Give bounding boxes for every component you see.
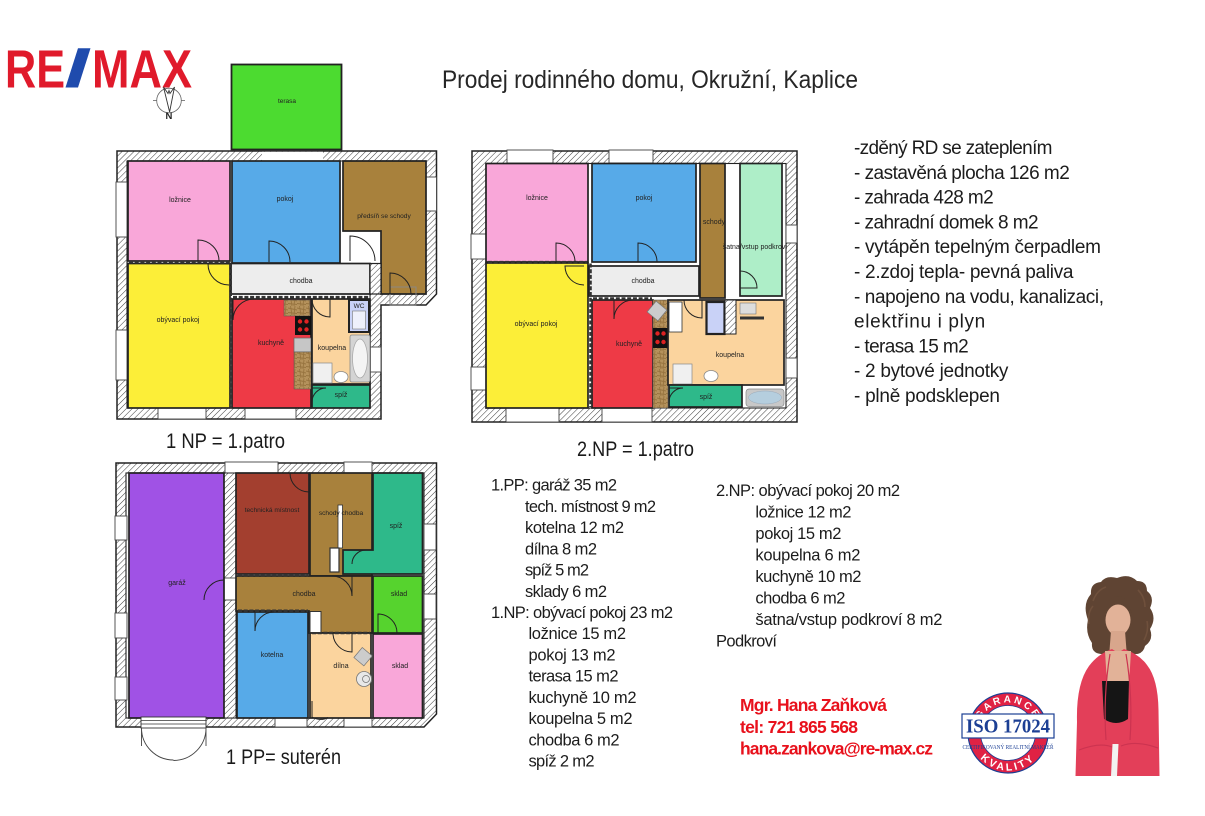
svg-text:sklad: sklad (392, 663, 408, 670)
svg-text:spíž: spíž (390, 523, 403, 530)
svg-text:RE: RE (5, 40, 65, 100)
svg-text:dílna: dílna (333, 663, 348, 670)
svg-text:ložnice: ložnice (526, 195, 548, 202)
svg-text:N: N (166, 111, 173, 122)
svg-text:Podkroví: Podkroví (716, 632, 777, 650)
svg-text:spíž 5 m2: spíž 5 m2 (525, 562, 589, 580)
svg-text:WC: WC (354, 303, 365, 310)
svg-text:technická místnost: technická místnost (245, 507, 300, 514)
svg-text:dílna 8 m2: dílna 8 m2 (525, 540, 597, 558)
svg-text:terasa: terasa (278, 98, 296, 105)
svg-text:kotelna: kotelna (261, 652, 284, 659)
svg-text:kuchyně 10 m2: kuchyně 10 m2 (755, 568, 861, 586)
svg-text:chodba: chodba (290, 278, 313, 285)
svg-text:předsíň se schody: předsíň se schody (357, 213, 411, 220)
svg-text:ISO 17024: ISO 17024 (966, 716, 1050, 738)
svg-text:2.NP = 1.patro: 2.NP = 1.patro (577, 438, 694, 461)
svg-text:obývací pokoj: obývací pokoj (515, 321, 558, 328)
svg-text:pokoj: pokoj (636, 195, 653, 202)
svg-text:koupelna 5 m2: koupelna 5 m2 (529, 710, 633, 728)
svg-text:spíž 2 m2: spíž 2 m2 (529, 753, 595, 771)
svg-text:tech. místnost 9 m2: tech. místnost 9 m2 (525, 498, 656, 516)
svg-text:koupelna: koupelna (318, 345, 347, 352)
svg-text:MAX: MAX (92, 40, 192, 100)
svg-text:1 NP = 1.patro: 1 NP = 1.patro (166, 430, 285, 453)
svg-text:kotelna 12 m2: kotelna 12 m2 (525, 519, 624, 537)
svg-text:1.NP: obývací pokoj 23 m2: 1.NP: obývací pokoj 23 m2 (491, 604, 673, 622)
svg-text:chodba: chodba (293, 591, 316, 598)
svg-text:- terasa 15 m2: - terasa 15 m2 (854, 336, 969, 357)
svg-text:Mgr. Hana Zaňková: Mgr. Hana Zaňková (740, 695, 887, 715)
svg-text:- 2 bytové jednotky: - 2 bytové jednotky (854, 361, 1009, 382)
svg-text:tel: 721 865 568: tel: 721 865 568 (740, 717, 858, 737)
svg-text:koupelna 6 m2: koupelna 6 m2 (755, 546, 860, 564)
svg-text:koupelna: koupelna (716, 352, 745, 359)
svg-text:2.NP: obývací pokoj 20 m2: 2.NP: obývací pokoj 20 m2 (716, 482, 900, 500)
svg-text:- zahrada 428 m2: - zahrada 428 m2 (854, 188, 994, 209)
svg-text:sklady 6 m2: sklady 6 m2 (525, 583, 607, 601)
svg-text:ložnice 12 m2: ložnice 12 m2 (755, 503, 851, 521)
svg-text:kuchyně: kuchyně (258, 340, 284, 347)
svg-text:1 PP= suterén: 1 PP= suterén (226, 746, 341, 769)
svg-text:pokoj 15 m2: pokoj 15 m2 (755, 525, 841, 543)
svg-text:hana.zankova@re-max.cz: hana.zankova@re-max.cz (740, 738, 933, 758)
svg-text:chodba: chodba (632, 278, 655, 285)
svg-text:garáž: garáž (168, 580, 186, 587)
svg-text:- zastavěná plocha 126 m2: - zastavěná plocha 126 m2 (854, 163, 1070, 184)
svg-text:obývací pokoj: obývací pokoj (157, 317, 200, 324)
svg-text:chodba 6 m2: chodba 6 m2 (755, 589, 845, 607)
svg-text:elektřinu i plyn: elektřinu i plyn (854, 312, 985, 333)
svg-text:kuchyně: kuchyně (616, 341, 642, 348)
svg-text:CERTIFIKOVANÝ REALITNÍ MAKLÉŘ: CERTIFIKOVANÝ REALITNÍ MAKLÉŘ (963, 743, 1054, 751)
svg-text:- vytápěn tepelným čerpadlem: - vytápěn tepelným čerpadlem (854, 237, 1101, 258)
svg-text:schody chodba: schody chodba (319, 510, 364, 517)
svg-text:ložnice 15 m2: ložnice 15 m2 (529, 625, 627, 643)
svg-text:sklad: sklad (391, 591, 407, 598)
svg-text:- plně podsklepen: - plně podsklepen (854, 386, 1000, 407)
svg-text:pokoj 13 m2: pokoj 13 m2 (529, 647, 616, 665)
svg-text:- 2.zdoj tepla- pevná paliva: - 2.zdoj tepla- pevná paliva (854, 262, 1074, 283)
svg-text:Prodej rodinného domu, Okružní: Prodej rodinného domu, Okružní, Kaplice (442, 66, 858, 94)
svg-text:- napojeno na vodu, kanalizaci: - napojeno na vodu, kanalizaci, (854, 287, 1104, 308)
svg-text:1.PP: garáž 35 m2: 1.PP: garáž 35 m2 (491, 477, 617, 495)
svg-text:ložnice: ložnice (169, 197, 191, 204)
svg-text:kuchyně 10 m2: kuchyně 10 m2 (529, 689, 637, 707)
svg-text:spíž: spíž (700, 394, 713, 401)
svg-text:schody: schody (703, 219, 726, 226)
svg-text:spíž: spíž (335, 392, 348, 399)
svg-text:chodba 6 m2: chodba 6 m2 (529, 731, 620, 749)
svg-text:- zahradní domek 8 m2: - zahradní domek 8 m2 (854, 212, 1039, 233)
svg-text:terasa 15 m2: terasa 15 m2 (529, 668, 619, 686)
svg-text:-zděný RD se zateplením: -zděný RD se zateplením (854, 138, 1053, 159)
svg-text:šatna/vstup podkroví 8 m2: šatna/vstup podkroví 8 m2 (755, 611, 942, 629)
svg-text:šatna/vstup podkroví: šatna/vstup podkroví (723, 244, 788, 251)
svg-text:pokoj: pokoj (277, 196, 294, 203)
